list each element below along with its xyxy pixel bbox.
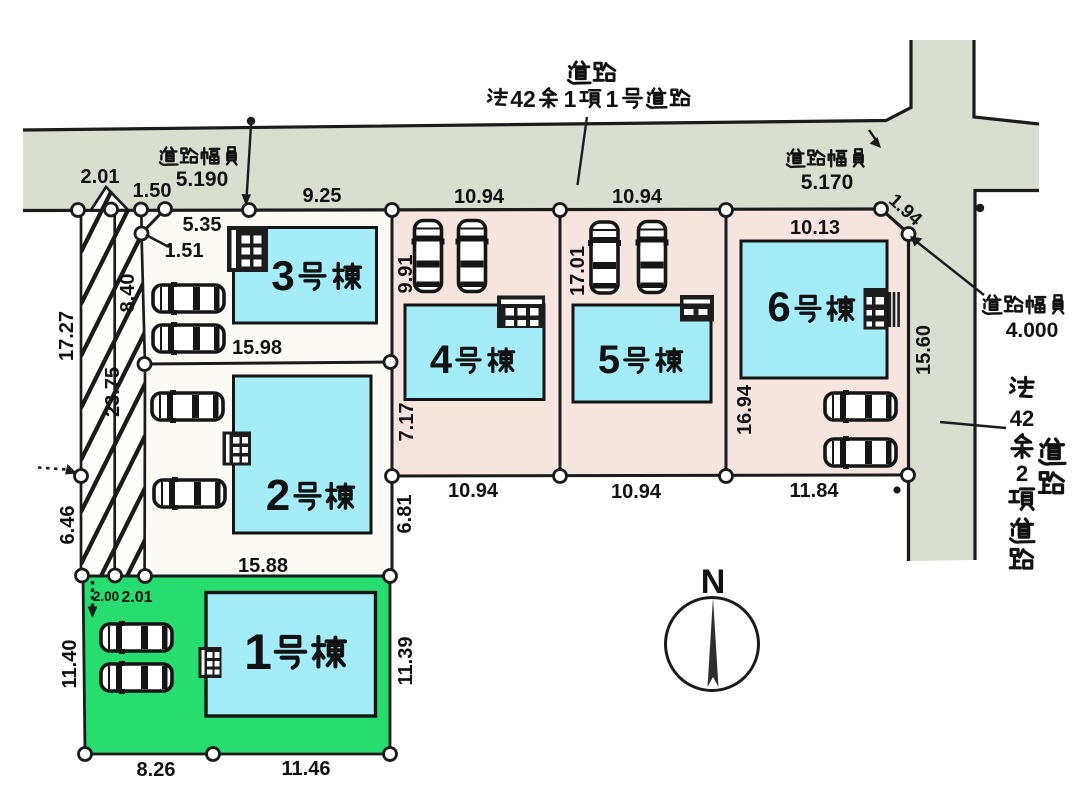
svg-text:1.51: 1.51 [165,240,204,262]
svg-text:16.94: 16.94 [734,384,756,435]
svg-text:8.26: 8.26 [137,759,176,781]
svg-text:1: 1 [564,86,577,112]
svg-text:2.01: 2.01 [121,589,152,606]
svg-text:1: 1 [244,624,272,680]
svg-text:8.40: 8.40 [117,274,139,313]
svg-text:2.00: 2.00 [93,589,119,604]
svg-text:5: 5 [598,338,620,382]
svg-text:1.50: 1.50 [133,180,172,202]
svg-text:10.13: 10.13 [790,217,840,239]
svg-text:6.46: 6.46 [57,506,79,545]
svg-text:10.94: 10.94 [448,480,499,502]
svg-text:23.75: 23.75 [102,367,124,417]
svg-text:2: 2 [266,471,290,520]
svg-text:15.98: 15.98 [232,337,282,359]
svg-text:15.88: 15.88 [238,555,288,577]
svg-text:10.94: 10.94 [611,481,662,503]
svg-text:3: 3 [271,252,294,299]
svg-text:17.27: 17.27 [56,311,78,361]
svg-text:2.01: 2.01 [81,166,120,188]
svg-text:6: 6 [767,283,790,330]
svg-text:11.84: 11.84 [790,480,840,502]
svg-text:9.91: 9.91 [395,255,417,294]
svg-text:5.170: 5.170 [801,171,854,194]
svg-text:4: 4 [430,338,453,382]
svg-text:2: 2 [1016,461,1028,486]
svg-text:5.35: 5.35 [183,214,222,236]
svg-text:6.81: 6.81 [394,495,416,534]
svg-text:42: 42 [510,86,536,112]
svg-text:7.17: 7.17 [396,403,418,442]
svg-text:11.39: 11.39 [395,637,417,686]
svg-text:11.46: 11.46 [282,758,331,780]
svg-text:42: 42 [1010,406,1034,431]
svg-text:N: N [701,563,726,601]
svg-text:15.60: 15.60 [913,325,935,375]
svg-text:5.190: 5.190 [176,168,229,191]
svg-text:10.94: 10.94 [454,186,505,208]
svg-text:11.40: 11.40 [59,640,81,689]
svg-text:9.25: 9.25 [303,185,342,207]
svg-text:10.94: 10.94 [612,186,663,208]
svg-text:4.000: 4.000 [1006,319,1059,342]
svg-text:17.01: 17.01 [567,246,589,296]
svg-text:1: 1 [606,86,619,112]
